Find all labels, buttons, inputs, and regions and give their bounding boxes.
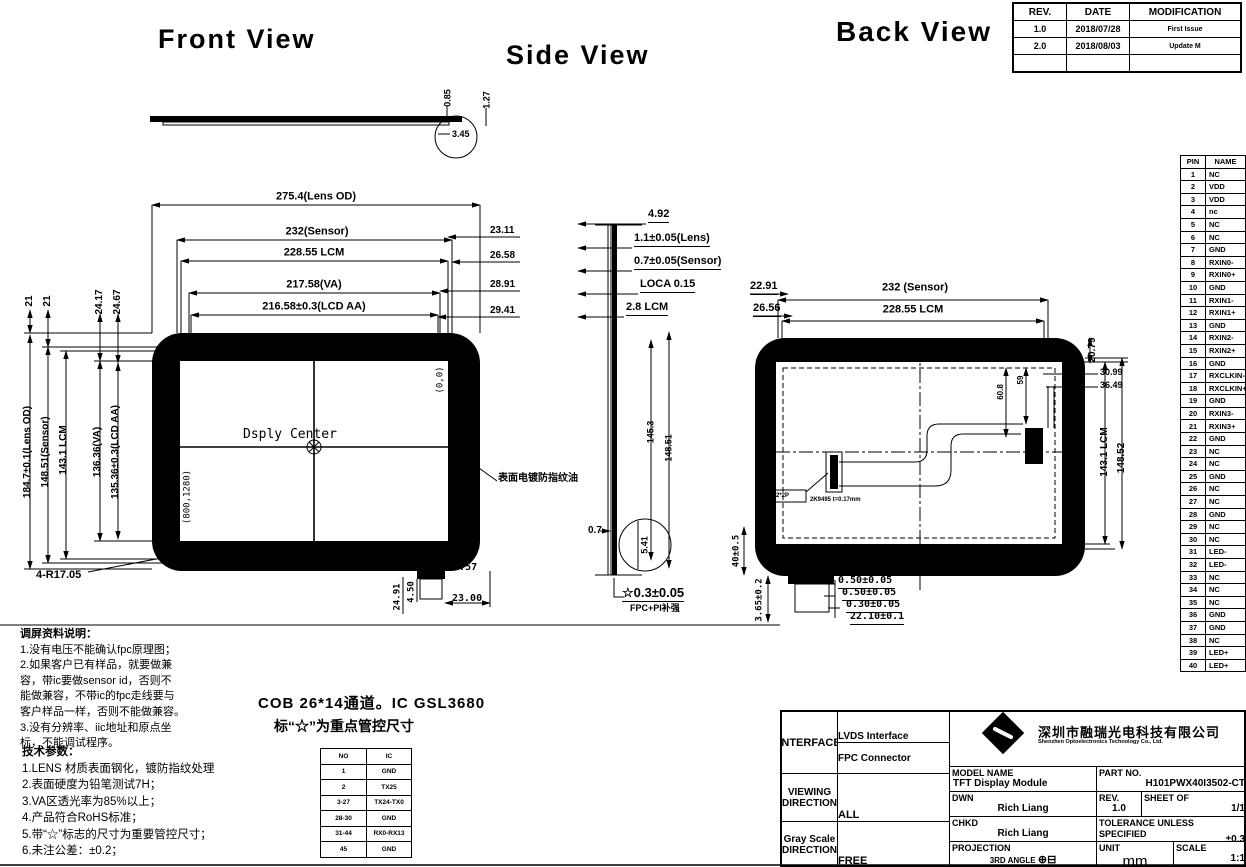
notes-lines: 1.没有电压不能确认fpc原理图；2.如果客户已有样品，就要做兼容，带ic要做s… <box>20 643 185 752</box>
note-line: 3.没有分辨率、iic地址和原点坐 <box>20 721 185 737</box>
tech-line: 4.产品符合RoHS标准； <box>22 810 214 827</box>
pin-row: 35 NC <box>1181 596 1246 609</box>
connector-row: 31-44 RX0-RX13 <box>321 826 412 842</box>
front-dim-sensor-v: 148.51(Sensor) <box>41 416 51 487</box>
coord-end-label: (800,1280) <box>184 470 193 524</box>
pin-number-cell: 26 <box>1181 483 1206 496</box>
revision-row: 2.0 2018/08/03 Update M <box>1013 38 1241 55</box>
side-dim-0-7: 0.7 <box>588 526 602 536</box>
back-view-linework <box>755 338 1085 612</box>
pin-row: 10 GND <box>1181 281 1246 294</box>
chkd-cell: CHKD Rich Liang <box>950 817 1097 842</box>
back-fpc-label-2x2p: 2*2P <box>776 493 789 499</box>
front-dim-lens-od: 275.4(Lens OD) <box>276 192 356 203</box>
chkd-value: Rich Liang <box>950 828 1096 839</box>
display-center-label: Dsply Center <box>243 428 337 441</box>
pin-name-cell: RXIN2- <box>1206 332 1246 345</box>
pin-name-cell: GND <box>1206 281 1246 294</box>
pin-row: 23 NC <box>1181 445 1246 458</box>
pin-name-cell: NC <box>1206 168 1246 181</box>
back-dim-26-56: 26.56 <box>753 303 781 317</box>
pin-header-name: NAME <box>1206 156 1246 169</box>
pin-number-cell: 10 <box>1181 281 1206 294</box>
pin-number-cell: 5 <box>1181 218 1206 231</box>
pin-number-cell: 12 <box>1181 307 1206 320</box>
revision-header-date: DATE <box>1067 3 1130 21</box>
pin-row: 8 RXIN0- <box>1181 256 1246 269</box>
side-dim-5-41: 5.41 <box>641 536 650 554</box>
pin-name-cell: RXIN0- <box>1206 256 1246 269</box>
pin-name-cell: NC <box>1206 596 1246 609</box>
front-dim-lcd-aa: 216.58±0.3(LCD AA) <box>262 302 365 313</box>
pin-row: 22 GND <box>1181 433 1246 446</box>
side-dim-lens: 1.1±0.05(Lens) <box>634 233 710 247</box>
pin-name-cell: NC <box>1206 571 1246 584</box>
pin-name-cell: GND <box>1206 357 1246 370</box>
connector-no-cell: 45 <box>321 842 367 858</box>
side-fpc-dim: ☆0.3±0.05 <box>622 586 684 602</box>
pin-number-cell: 40 <box>1181 659 1206 672</box>
back-dim-22-91: 22.91 <box>750 281 778 295</box>
pin-number-cell: 39 <box>1181 647 1206 660</box>
interface-value1-cell: LVDS Interface <box>838 712 950 743</box>
pin-number-cell: 9 <box>1181 269 1206 282</box>
tech-heading: 技术参数： <box>22 744 214 761</box>
screen-tuning-notes: 调屏资料说明： 1.没有电压不能确认fpc原理图；2.如果客户已有样品，就要做兼… <box>20 627 185 752</box>
connector-row: 28-30 GND <box>321 811 412 827</box>
sheet-value: 1/1 <box>1142 803 1246 814</box>
connector-row: 2 TX25 <box>321 780 412 796</box>
scale-cell: SCALE 1:1 <box>1174 842 1246 867</box>
part-no-cell: PART NO. H101PWX40I3502-CT <box>1097 767 1246 792</box>
silkscreen-label: 黑色丝印 <box>210 556 254 567</box>
pin-row: 11 RXIN1- <box>1181 294 1246 307</box>
pin-number-cell: 2 <box>1181 181 1206 194</box>
pin-name-cell: NC <box>1206 634 1246 647</box>
front-view-title: Front View <box>158 24 316 55</box>
back-dim-20-79: 20.79 <box>1088 337 1098 362</box>
pin-row: 21 RXIN3+ <box>1181 420 1246 433</box>
side-dim-148-51: 148.51 <box>665 434 674 462</box>
model-name-cell: MODEL NAME TFT Display Module <box>950 767 1097 792</box>
pin-header-pin: PIN <box>1181 156 1206 169</box>
pin-number-cell: 19 <box>1181 395 1206 408</box>
revision-mod-cell: Update M <box>1130 38 1242 55</box>
viewing-label-line1: VIEWING <box>788 787 831 798</box>
side-fpc-note: FPC+PI补强 <box>630 604 680 613</box>
pin-row: 19 GND <box>1181 395 1246 408</box>
pin-row: 2 VDD <box>1181 181 1246 194</box>
pin-row: 31 LED- <box>1181 546 1246 559</box>
back-dim-sensor: 232 (Sensor) <box>882 283 948 294</box>
gray-scale-value-cell: FREE <box>838 822 950 867</box>
pin-name-cell: nc <box>1206 206 1246 219</box>
gray-label-line1: Gray Scale <box>784 834 836 845</box>
note-line: 2.如果客户已有样品，就要做兼 <box>20 658 185 674</box>
rev-value: 1.0 <box>1097 803 1141 814</box>
pin-table: PIN NAME 1 NC 2 VDD 3 VDD 4 nc <box>1180 155 1246 672</box>
pin-name-cell: NC <box>1206 483 1246 496</box>
pin-number-cell: 38 <box>1181 634 1206 647</box>
coating-note-label: 表面电镀防指纹油 <box>498 474 578 484</box>
pin-number-cell: 8 <box>1181 256 1206 269</box>
pin-row: 30 NC <box>1181 533 1246 546</box>
revision-table: REV. DATE MODIFICATION 1.0 2018/07/28 Fi… <box>1012 2 1242 73</box>
front-dim-24-17: 24.17 <box>95 289 105 314</box>
pin-number-cell: 18 <box>1181 382 1206 395</box>
interface-value2-cell: FPC Connector <box>838 743 950 774</box>
pin-row: 16 GND <box>1181 357 1246 370</box>
model-name-label: MODEL NAME <box>950 767 1096 778</box>
pin-name-cell: NC <box>1206 521 1246 534</box>
revision-row: 1.0 2018/07/28 First Issue <box>1013 21 1241 38</box>
pin-number-cell: 17 <box>1181 370 1206 383</box>
projection-cell: PROJECTION 3RD ANGLE ⊕⊟ <box>950 842 1097 867</box>
viewing-label-line2: DIRECTION <box>782 798 837 809</box>
pin-number-cell: 11 <box>1181 294 1206 307</box>
pin-name-cell: GND <box>1206 319 1246 332</box>
pin-table-body: 1 NC 2 VDD 3 VDD 4 nc 5 NC <box>1181 168 1246 672</box>
pin-row: 39 LED+ <box>1181 647 1246 660</box>
pin-name-cell: GND <box>1206 244 1246 257</box>
connector-table-body: 1 GND 2 TX25 3-27 TX24-TX0 28-30 GND 31-… <box>321 764 412 857</box>
back-view-title: Back View <box>836 16 992 48</box>
side-dim-lcm: 2.8 LCM <box>626 302 668 316</box>
connector-row: 3-27 TX24-TX0 <box>321 795 412 811</box>
pin-row: 20 RXIN3- <box>1181 407 1246 420</box>
pin-row: 25 GND <box>1181 470 1246 483</box>
viewing-direction-value-cell: ALL <box>838 774 950 822</box>
revision-rev-cell <box>1013 55 1067 73</box>
back-dim-lcm: 228.55 LCM <box>883 305 944 316</box>
pin-name-cell: RXIN1+ <box>1206 307 1246 320</box>
back-dim-40: 40±0.5 <box>733 535 742 568</box>
connector-header-row: NO IC <box>321 749 412 765</box>
unit-value: mm <box>1097 853 1173 867</box>
pin-name-cell: GND <box>1206 395 1246 408</box>
interface-label-cell: INTERFACE <box>782 712 838 774</box>
front-dim-sensor: 232(Sensor) <box>286 227 349 238</box>
pin-number-cell: 16 <box>1181 357 1206 370</box>
connector-no-cell: 28-30 <box>321 811 367 827</box>
pin-number-cell: 24 <box>1181 458 1206 471</box>
pin-row: 1 NC <box>1181 168 1246 181</box>
pin-name-cell: RXIN0+ <box>1206 269 1246 282</box>
pin-number-cell: 7 <box>1181 244 1206 257</box>
title-block: INTERFACE LVDS Interface FPC Connector V… <box>780 710 1246 867</box>
pin-number-cell: 30 <box>1181 533 1206 546</box>
connector-no-cell: 1 <box>321 764 367 780</box>
pin-number-cell: 6 <box>1181 231 1206 244</box>
unit-label: UNIT <box>1097 842 1173 853</box>
front-dim-va-v: 136.36(VA) <box>93 427 103 477</box>
revision-rev-cell: 2.0 <box>1013 38 1067 55</box>
pin-row: 6 NC <box>1181 231 1246 244</box>
pin-number-cell: 23 <box>1181 445 1206 458</box>
pin-name-cell: RXIN1- <box>1206 294 1246 307</box>
pin-number-cell: 21 <box>1181 420 1206 433</box>
pin-name-cell: LED+ <box>1206 647 1246 660</box>
front-dim-lcd-aa-v: 135.36±0.3(LCD AA) <box>111 405 121 499</box>
back-dim-36-49: 36.49 <box>1100 381 1123 390</box>
pin-row: 36 GND <box>1181 609 1246 622</box>
pin-number-cell: 1 <box>1181 168 1206 181</box>
pin-name-cell: GND <box>1206 621 1246 634</box>
tolerance-value: ±0.3 <box>1226 828 1246 842</box>
connector-header-no: NO <box>321 749 367 765</box>
pin-name-cell: RXCLKIN- <box>1206 370 1246 383</box>
revision-header-modification: MODIFICATION <box>1130 3 1242 21</box>
engineering-drawing-sheet: Front View Side View Back View 0.85 1.27… <box>0 0 1246 867</box>
model-name-value: TFT Display Module <box>950 778 1096 789</box>
pin-name-cell: NC <box>1206 584 1246 597</box>
pin-number-cell: 32 <box>1181 559 1206 572</box>
rev-label: REV. <box>1097 792 1141 803</box>
connector-ic-cell: TX24-TX0 <box>367 795 412 811</box>
pin-row: 40 LED+ <box>1181 659 1246 672</box>
pin-number-cell: 37 <box>1181 621 1206 634</box>
pin-row: 13 GND <box>1181 319 1246 332</box>
tech-lines: 1.LENS 材质表面钢化，镀防指纹处理2.表面硬度为铅笔测试7H；3.VA区透… <box>22 761 214 860</box>
pin-name-cell: NC <box>1206 218 1246 231</box>
tolerance-cell: TOLERANCE UNLESS SPECIFIED ±0.3 <box>1097 817 1246 842</box>
sheet-cell: SHEET OF 1/1 <box>1142 792 1246 817</box>
pin-number-cell: 33 <box>1181 571 1206 584</box>
front-dim-23-00: 23.00 <box>452 594 482 604</box>
pin-name-cell: RXIN3- <box>1206 407 1246 420</box>
tech-line: 3.VA区透光率为85%以上； <box>22 794 214 811</box>
pin-row: 15 RXIN2+ <box>1181 344 1246 357</box>
cob-note-line2: 标“☆”为重点管控尺寸 <box>274 719 414 733</box>
front-dim-21-b: 21 <box>43 295 53 306</box>
pin-name-cell: RXIN2+ <box>1206 344 1246 357</box>
pin-row: 29 NC <box>1181 521 1246 534</box>
front-dim-lcm: 228.55 LCM <box>284 248 345 259</box>
pin-name-cell: LED- <box>1206 546 1246 559</box>
back-dim-60-8: 60.8 <box>997 384 1005 400</box>
revision-row <box>1013 55 1241 73</box>
pin-name-cell: RXCLKIN+ <box>1206 382 1246 395</box>
unit-cell: UNIT mm <box>1097 842 1174 867</box>
pin-row: 4 nc <box>1181 206 1246 219</box>
pin-name-cell: NC <box>1206 445 1246 458</box>
pin-name-cell: VDD <box>1206 181 1246 194</box>
note-line: 能做兼容，不带ic的fpc走线要与 <box>20 689 185 705</box>
back-dim-3-65: 3.65±0.2 <box>756 578 765 621</box>
pin-row: 32 LED- <box>1181 559 1246 572</box>
front-dim-21-a: 21 <box>25 295 35 306</box>
part-no-value: H101PWX40I3502-CT <box>1097 778 1246 789</box>
front-dim-28-91: 28.91 <box>490 280 515 290</box>
company-logo-cell: 深圳市融瑞光电科技有限公司 Shenzhen Optoelectronics T… <box>950 712 1246 767</box>
pin-name-cell: RXIN3+ <box>1206 420 1246 433</box>
note-line: 1.没有电压不能确认fpc原理图； <box>20 643 185 659</box>
pin-number-cell: 29 <box>1181 521 1206 534</box>
pin-number-cell: 3 <box>1181 193 1206 206</box>
pin-name-cell: GND <box>1206 433 1246 446</box>
pin-row: 17 RXCLKIN- <box>1181 370 1246 383</box>
projection-angle-text: 3RD ANGLE <box>990 856 1036 865</box>
revision-header-rev: REV. <box>1013 3 1067 21</box>
pin-number-cell: 22 <box>1181 433 1206 446</box>
gray-scale-label-cell: Gray Scale DIRECTION <box>782 822 838 867</box>
back-dim-30-99: 30.99 <box>1100 368 1123 377</box>
front-dim-4-50: 4.50 <box>408 581 417 603</box>
pin-row: 24 NC <box>1181 458 1246 471</box>
revision-rev-cell: 1.0 <box>1013 21 1067 38</box>
pin-number-cell: 27 <box>1181 496 1206 509</box>
front-dim-23-11: 23.11 <box>490 226 514 236</box>
pin-name-cell: NC <box>1206 458 1246 471</box>
pin-name-cell: NC <box>1206 496 1246 509</box>
back-dim-59: 59 <box>1017 376 1025 385</box>
connector-row: 45 GND <box>321 842 412 858</box>
revision-mod-cell <box>1130 55 1242 73</box>
revision-date-cell <box>1067 55 1130 73</box>
company-name-en: Shenzhen Optoelectronics Technology Co.,… <box>1038 739 1163 745</box>
connector-row: 1 GND <box>321 764 412 780</box>
pin-number-cell: 4 <box>1181 206 1206 219</box>
side-dim-4-92: 4.92 <box>648 209 669 223</box>
corner-radius-label: 4-R17.05 <box>36 570 81 581</box>
revision-table-body: 1.0 2018/07/28 First Issue 2.0 2018/08/0… <box>1013 21 1241 73</box>
pin-number-cell: 14 <box>1181 332 1206 345</box>
pin-row: 5 NC <box>1181 218 1246 231</box>
company-logo-icon <box>982 712 1024 754</box>
pin-name-cell: GND <box>1206 508 1246 521</box>
revision-date-cell: 2018/08/03 <box>1067 38 1130 55</box>
rev-cell: REV. 1.0 <box>1097 792 1142 817</box>
connector-no-cell: 3-27 <box>321 795 367 811</box>
tech-line: 1.LENS 材质表面钢化，镀防指纹处理 <box>22 761 214 778</box>
tech-params-notes: 技术参数： 1.LENS 材质表面钢化，镀防指纹处理2.表面硬度为铅笔测试7H；… <box>22 744 214 860</box>
notes-heading: 调屏资料说明： <box>20 627 185 643</box>
front-dim-24-67: 24.67 <box>113 289 123 314</box>
tolerance-label-line2: SPECIFIED <box>1097 828 1149 839</box>
back-fpc-label-thickness: 2K9495 t=0.17mm <box>810 497 861 503</box>
tolerance-label-line1: TOLERANCE UNLESS <box>1097 817 1246 828</box>
pin-number-cell: 20 <box>1181 407 1206 420</box>
side-dim-145-3: 145.3 <box>647 421 656 444</box>
pin-name-cell: LED+ <box>1206 659 1246 672</box>
pin-row: 26 NC <box>1181 483 1246 496</box>
profile-dim-3-45: 3.45 <box>452 130 470 139</box>
front-dim-va: 217.58(VA) <box>286 280 341 291</box>
front-dim-26-58: 26.58 <box>490 251 515 261</box>
pin-name-cell: NC <box>1206 231 1246 244</box>
side-view-title: Side View <box>506 40 650 71</box>
pin-number-cell: 15 <box>1181 344 1206 357</box>
pin-number-cell: 36 <box>1181 609 1206 622</box>
tech-line: 2.表面硬度为铅笔测试7H； <box>22 777 214 794</box>
scale-value: 1:1 <box>1174 853 1246 864</box>
connector-ic-cell: RX0-RX13 <box>367 826 412 842</box>
front-dim-lens-od-v: 184.7±0.1(Lens OD) <box>23 406 33 498</box>
revision-date-cell: 2018/07/28 <box>1067 21 1130 38</box>
pin-row: 12 RXIN1+ <box>1181 307 1246 320</box>
profile-view-linework <box>150 106 486 158</box>
gray-label-line2: DIRECTION <box>782 845 837 856</box>
pin-row: 34 NC <box>1181 584 1246 597</box>
note-line: 客户样品一样，否则不能做兼容。 <box>20 705 185 721</box>
front-dim-24-91: 24.91 <box>394 583 403 610</box>
pin-number-cell: 13 <box>1181 319 1206 332</box>
scale-label: SCALE <box>1174 842 1246 853</box>
tech-line: 5.带“☆”标志的尺寸为重要管控尺寸； <box>22 827 214 844</box>
note-line: 容，带ic要做sensor id，否则不 <box>20 674 185 690</box>
profile-dim-0-85: 0.85 <box>444 89 453 107</box>
pin-row: 37 GND <box>1181 621 1246 634</box>
pin-row: 18 RXCLKIN+ <box>1181 382 1246 395</box>
front-dim-lcm-v: 143.1 LCM <box>59 425 69 474</box>
pin-number-cell: 31 <box>1181 546 1206 559</box>
coord-origin-label: (0,0) <box>437 366 446 393</box>
pin-name-cell: VDD <box>1206 193 1246 206</box>
pin-header-row: PIN NAME <box>1181 156 1246 169</box>
sheet-label: SHEET OF <box>1142 792 1246 803</box>
pin-row: 7 GND <box>1181 244 1246 257</box>
front-view-linework <box>152 333 480 599</box>
revision-mod-cell: First Issue <box>1130 21 1242 38</box>
connector-ic-cell: GND <box>367 811 412 827</box>
pin-name-cell: NC <box>1206 533 1246 546</box>
connector-no-cell: 2 <box>321 780 367 796</box>
pin-row: 28 GND <box>1181 508 1246 521</box>
dwn-value: Rich Liang <box>950 803 1096 814</box>
dwn-cell: DWN Rich Liang <box>950 792 1097 817</box>
viewing-direction-label-cell: VIEWING DIRECTION <box>782 774 838 822</box>
side-dim-loca: LOCA 0.15 <box>640 279 695 293</box>
pin-name-cell: GND <box>1206 470 1246 483</box>
pin-row: 27 NC <box>1181 496 1246 509</box>
connector-header-ic: IC <box>367 749 412 765</box>
pin-number-cell: 35 <box>1181 596 1206 609</box>
part-no-label: PART NO. <box>1097 767 1246 778</box>
pin-row: 14 RXIN2- <box>1181 332 1246 345</box>
connector-no-cell: 31-44 <box>321 826 367 842</box>
connector-table: NO IC 1 GND 2 TX25 3-27 TX24-TX0 28-30 G… <box>320 748 412 858</box>
revision-header-row: REV. DATE MODIFICATION <box>1013 3 1241 21</box>
connector-ic-cell: TX25 <box>367 780 412 796</box>
back-dim-148-52: 148.52 <box>1117 443 1127 474</box>
pin-row: 9 RXIN0+ <box>1181 269 1246 282</box>
connector-ic-cell: GND <box>367 764 412 780</box>
connector-ic-cell: GND <box>367 842 412 858</box>
pin-row: 3 VDD <box>1181 193 1246 206</box>
projection-value: 3RD ANGLE ⊕⊟ <box>950 853 1096 866</box>
dwn-label: DWN <box>950 792 1096 803</box>
pin-name-cell: LED- <box>1206 559 1246 572</box>
pin-row: 38 NC <box>1181 634 1246 647</box>
back-dim-143-1: 143.1 LCM <box>1100 427 1110 476</box>
third-angle-projection-icon: ⊕⊟ <box>1038 854 1056 866</box>
side-dim-sensor: 0.7±0.05(Sensor) <box>634 256 721 270</box>
pin-number-cell: 25 <box>1181 470 1206 483</box>
back-dim-22-10: 22.10±0.1 <box>850 612 904 625</box>
projection-label: PROJECTION <box>950 842 1096 853</box>
pin-name-cell: GND <box>1206 609 1246 622</box>
front-dim-28-57: 28.57 <box>447 563 477 573</box>
cob-note-line1: COB 26*14通道。IC GSL3680 <box>258 696 485 711</box>
pin-number-cell: 34 <box>1181 584 1206 597</box>
tech-line: 6.未注公差：±0.2； <box>22 843 214 860</box>
pin-row: 33 NC <box>1181 571 1246 584</box>
pin-number-cell: 28 <box>1181 508 1206 521</box>
profile-dim-1-27: 1.27 <box>483 91 492 109</box>
chkd-label: CHKD <box>950 817 1096 828</box>
front-dim-29-41: 29.41 <box>490 306 515 316</box>
